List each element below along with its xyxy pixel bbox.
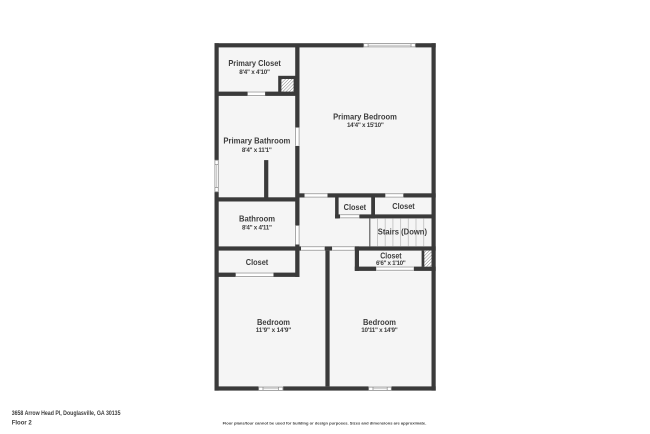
- svg-text:Bathroom: Bathroom: [239, 213, 275, 223]
- svg-text:14'4" x 15'10": 14'4" x 15'10": [347, 122, 384, 129]
- svg-text:Stairs (Down): Stairs (Down): [378, 227, 427, 237]
- svg-text:Primary Bedroom: Primary Bedroom: [333, 112, 397, 122]
- svg-text:3658 Arrow Head Pl, Douglasvil: 3658 Arrow Head Pl, Douglasville, GA 301…: [12, 410, 121, 417]
- svg-text:Closet: Closet: [246, 257, 269, 267]
- svg-text:Primary Bathroom: Primary Bathroom: [223, 136, 290, 146]
- svg-text:10'11" x 14'9": 10'11" x 14'9": [361, 327, 397, 334]
- svg-text:Floor 2: Floor 2: [12, 420, 33, 427]
- svg-text:6'6" x 1'10": 6'6" x 1'10": [376, 260, 406, 267]
- svg-text:Closet: Closet: [344, 202, 367, 212]
- svg-text:8'4" x 11'1": 8'4" x 11'1": [242, 147, 272, 154]
- svg-text:11'9" x 14'9": 11'9" x 14'9": [256, 327, 292, 334]
- svg-text:Primary Closet: Primary Closet: [228, 58, 281, 68]
- svg-text:Bedroom: Bedroom: [257, 317, 290, 327]
- svg-text:Floor plans/tour cannot be use: Floor plans/tour cannot be used for buil…: [223, 421, 427, 426]
- svg-text:Closet: Closet: [392, 201, 415, 211]
- svg-text:Bedroom: Bedroom: [363, 317, 396, 327]
- svg-text:8'4" x 4'11": 8'4" x 4'11": [242, 225, 272, 232]
- svg-text:Closet: Closet: [380, 250, 402, 260]
- svg-text:8'4" x 4'10": 8'4" x 4'10": [239, 69, 270, 76]
